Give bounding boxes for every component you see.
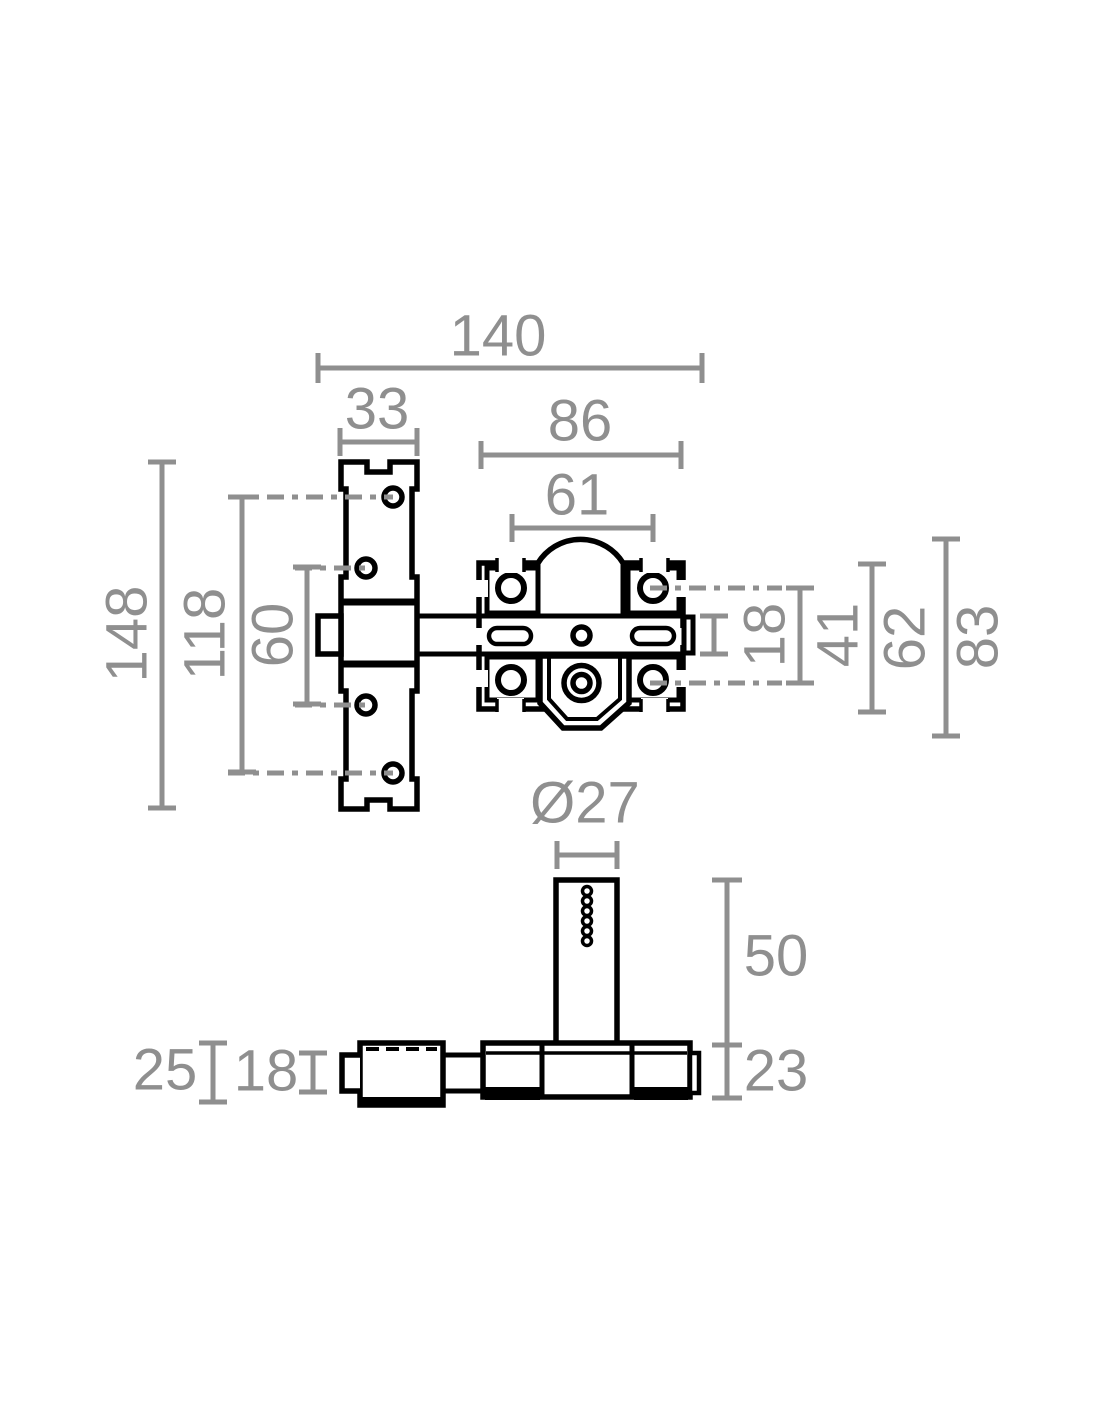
dim-line — [557, 841, 617, 869]
dim-label-body-height: 62 — [873, 606, 938, 671]
front-view: 140 33 86 61 148 118 60 18 — [95, 304, 1011, 810]
bolt-guide-loop — [318, 616, 341, 654]
dim-label-bar-height: 23 — [744, 1039, 809, 1104]
dim-label-rod-depth: 18 — [234, 1039, 299, 1104]
channel-slot-right — [632, 628, 674, 644]
notch-left-edge-upper — [472, 580, 488, 597]
side-view: Ø27 50 23 25 18 — [133, 771, 809, 1106]
notch-left-edge-lower — [472, 670, 488, 687]
notch-top-left — [497, 556, 524, 573]
technical-drawing-page: 140 33 86 61 148 118 60 18 — [0, 0, 1100, 1422]
body-screw-hole — [498, 575, 524, 601]
notch-bottom-right — [641, 698, 668, 714]
dim-label-overall-width: 140 — [450, 304, 547, 369]
notch-top-right — [641, 556, 668, 573]
cylinder-keyway-dots — [583, 887, 592, 946]
dim-label-cylinder-diameter: Ø27 — [530, 771, 640, 836]
dim-label-inner-hole-spacing: 60 — [241, 603, 306, 668]
dim-label-keeper-height: 148 — [95, 586, 160, 683]
dim-label-overall-height: 83 — [946, 605, 1011, 670]
dim-bar-height: 23 — [712, 1039, 808, 1104]
dim-label-cylinder-height: 50 — [744, 924, 809, 989]
body-screw-hole — [640, 667, 666, 693]
center-pin-hole — [573, 627, 590, 644]
body-screw-hole — [498, 667, 524, 693]
lock-bar-pad-right — [634, 1087, 688, 1100]
dim-rod-depth: 18 — [234, 1039, 327, 1104]
dim-overall-height: 83 — [932, 539, 1011, 736]
dim-label-outer-hole-spacing: 118 — [173, 588, 238, 680]
dim-label-keeper-depth: 25 — [133, 1038, 198, 1103]
keyhole-cylinder-inner — [573, 675, 590, 692]
dim-keeper-height: 148 — [95, 462, 177, 808]
dim-line — [199, 1043, 227, 1102]
bolt-rod-side — [443, 1055, 483, 1091]
dim-label-body-width: 86 — [548, 389, 613, 454]
dim-label-screw-spacing-v: 41 — [806, 603, 871, 668]
dim-label-screw-spacing-h: 61 — [545, 463, 610, 528]
dim-line — [299, 1053, 327, 1092]
keeper-plate-outline — [341, 462, 417, 809]
dim-body-height: 62 — [858, 564, 938, 712]
dim-label-bolt-height: 18 — [733, 603, 798, 668]
channel-slot-left — [489, 628, 531, 644]
dim-overall-width: 140 — [318, 304, 702, 384]
bolt-tip-side — [690, 1053, 699, 1093]
dim-line — [712, 880, 742, 1045]
keeper-block-side — [360, 1043, 443, 1105]
dim-cylinder-height: 50 — [712, 880, 808, 1045]
dim-keeper-width: 33 — [340, 377, 417, 457]
dim-body-width: 86 — [481, 389, 681, 470]
lock-dimension-drawing: 140 33 86 61 148 118 60 18 — [0, 0, 1100, 1422]
notch-channel-left — [473, 628, 488, 645]
keeper-block-pad — [362, 1097, 441, 1105]
dim-cylinder-diameter: Ø27 — [530, 771, 640, 870]
dim-line — [700, 616, 728, 654]
lock-bar-pad-left — [485, 1087, 540, 1100]
dim-keeper-depth: 25 — [133, 1038, 227, 1103]
notch-bottom-left — [497, 698, 524, 714]
dim-bolt-height: 18 — [700, 603, 798, 668]
dim-screw-spacing-horizontal: 61 — [512, 463, 653, 543]
bolt-tail-side — [342, 1055, 360, 1091]
dim-screw-spacing-vertical: 41 — [786, 588, 871, 683]
dim-label-keeper-width: 33 — [345, 377, 410, 442]
dim-line — [712, 1045, 742, 1098]
dim-inner-hole-spacing: 60 — [241, 567, 322, 704]
